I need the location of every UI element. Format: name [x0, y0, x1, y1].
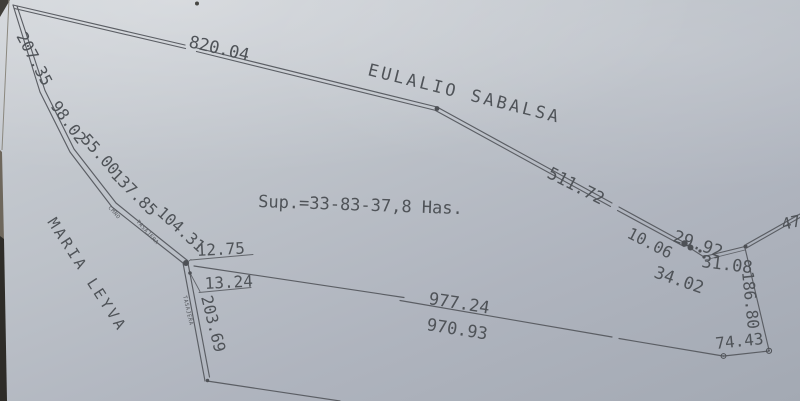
dim-south-upper: 977.24	[427, 289, 491, 318]
plat-photo: 820.04 207.35 98.02 55.00 137.85 104.31 …	[0, 0, 800, 401]
dim-northeast-diagonal: 511.72	[544, 164, 608, 210]
survey-point-junction-b	[188, 271, 192, 275]
survey-point-north-bend	[435, 106, 440, 111]
plat-drawing: 820.04 207.35 98.02 55.00 137.85 104.31 …	[0, 0, 800, 401]
dim-east-boundary: 186.80	[738, 270, 763, 329]
dim-west-lower: 203.69	[197, 293, 229, 354]
south-boundary-seg-c	[619, 339, 723, 357]
dim-south-lower: 970.93	[425, 315, 489, 344]
road-name-upper-2: TASAJERA	[135, 219, 160, 246]
north-boundary-outer-a	[13, 5, 185, 45]
paper-edge-bottom-left	[0, 236, 7, 401]
survey-monument-southeast-b-center	[723, 355, 725, 357]
dim-top-boundary: 820.04	[187, 32, 251, 65]
dim-west-1: 207.35	[12, 29, 56, 89]
north-boundary-inner-a	[15, 9, 186, 49]
road-name-upper-1: CMNO	[107, 205, 122, 220]
survey-point-junction	[183, 260, 189, 266]
area-label: Sup.=33-83-37,8 Has.	[258, 192, 463, 219]
survey-point-northeast	[744, 245, 748, 249]
survey-monument-southeast-a-center	[768, 350, 770, 352]
southeast-line	[724, 351, 769, 356]
dim-northeast-partial: 47	[780, 211, 800, 234]
southwest-exit-line	[207, 381, 340, 401]
dim-corner-c: 34.02	[651, 263, 706, 299]
paper-fleck	[195, 2, 199, 6]
survey-point-southwest	[206, 379, 209, 382]
paper-edge-mid-left	[0, 150, 4, 242]
adjoiner-west-label: MARIA LEYVA	[44, 214, 131, 335]
adjoiner-north-label: EULALIO SABALSA	[366, 60, 563, 127]
dim-jog-upper: 12.75	[196, 238, 245, 259]
dim-jog-lower: 13.24	[204, 271, 253, 292]
dim-corner-a: 10.06	[624, 224, 676, 263]
paper-edge-crease	[2, 0, 9, 150]
dim-southeast: 74.43	[714, 329, 764, 353]
text-labels: EULALIO SABALSA MARIA LEYVA Sup.=33-83-3…	[44, 60, 564, 335]
